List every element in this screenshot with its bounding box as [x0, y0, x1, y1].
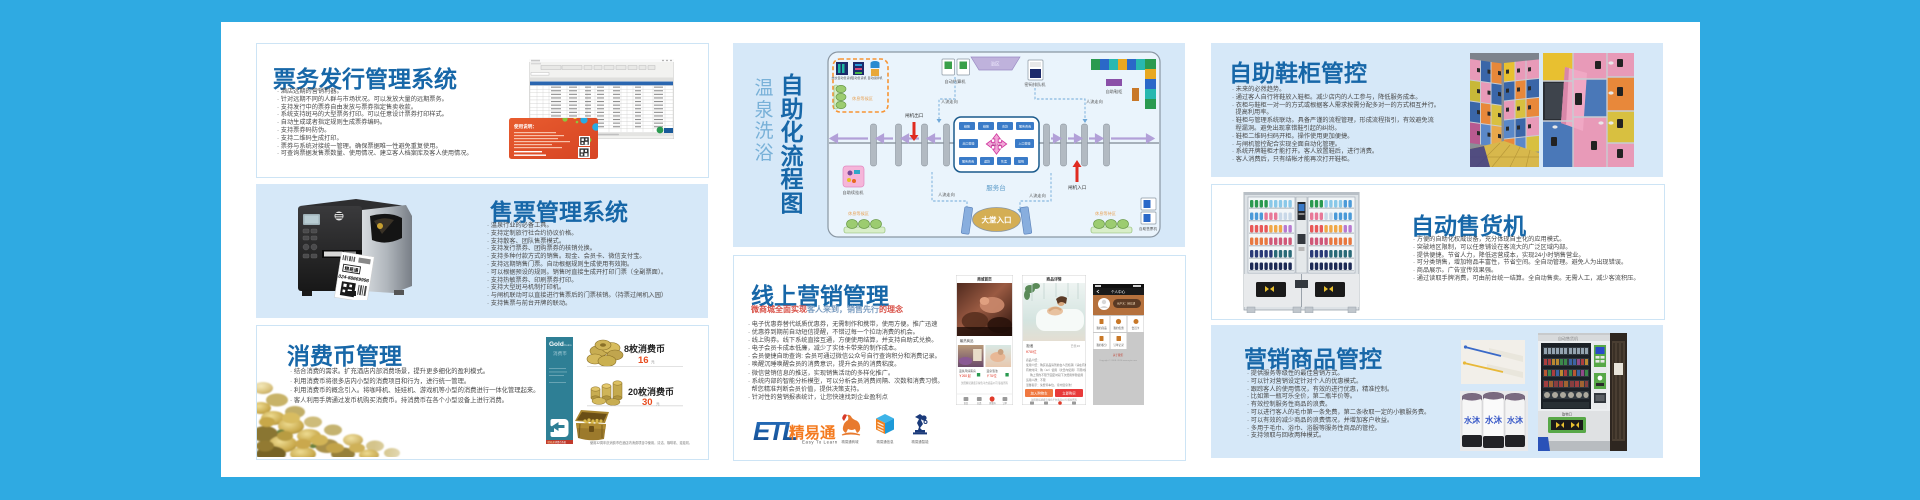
svg-text:取物口: 取物口: [1562, 412, 1572, 417]
svg-text:￥268 起: ￥268 起: [959, 373, 972, 378]
svg-text:服务咨询: 服务咨询: [962, 159, 974, 164]
svg-text:大堂入口: 大堂入口: [982, 215, 1012, 225]
svg-text:出口查验: 出口查验: [962, 141, 974, 146]
svg-text:水沐: 水沐: [1484, 415, 1503, 425]
svg-text:人流走向: 人流走向: [1029, 192, 1046, 199]
svg-text:水沐: 水沐: [1506, 415, 1524, 425]
svg-text:人流走向: 人流走向: [941, 98, 958, 105]
svg-text:消费币: 消费币: [553, 350, 567, 357]
svg-text:精易通信息: 精易通信息: [877, 439, 895, 444]
svg-text:16: 16: [638, 355, 649, 366]
svg-text:商品详情: 商品详情: [1046, 277, 1061, 282]
svg-text:关于我们: 关于我们: [1113, 353, 1124, 357]
svg-text:订单记录: 订单记录: [1113, 343, 1124, 347]
svg-text:返款: 返款: [984, 159, 990, 164]
svg-text:元: 元: [651, 360, 655, 364]
svg-text:泡池: 泡池: [1026, 343, 1034, 348]
svg-text:自助售票机: 自助售票机: [1139, 226, 1157, 231]
svg-text:提到: 提到: [1018, 159, 1024, 164]
svg-text:加入购物车: 加入购物车: [1031, 391, 1049, 396]
svg-text:￥78/位: ￥78/位: [986, 373, 996, 378]
svg-text:我的优惠: 我的优惠: [1113, 326, 1124, 330]
svg-text:20枚消费币: 20枚消费币: [628, 386, 674, 397]
svg-text:¥78/位: ¥78/位: [1026, 349, 1037, 354]
svg-text:温泉风情客房: 温泉风情客房: [959, 368, 976, 373]
svg-text:Copyright © 2008–2016 www.eyto: Copyright © 2008–2016 www.eyto.com: [1099, 359, 1137, 362]
svg-text:浴区: 浴区: [991, 61, 1000, 68]
svg-text:元: 元: [656, 402, 660, 406]
svg-text:沈阳精易通盛京绿色平台商品公司 版权所有: 沈阳精易通盛京绿色平台商品公司 版权所有: [1031, 398, 1078, 402]
svg-text:小计：: 小计：: [637, 350, 646, 355]
svg-text:闸机出口: 闸机出口: [905, 112, 924, 119]
svg-text:立即购买: 立即购买: [1062, 391, 1076, 396]
svg-text:服务台: 服务台: [986, 183, 1006, 192]
svg-text:个人中心: 个人中心: [1111, 289, 1126, 294]
svg-text:Gold: Gold: [549, 341, 564, 348]
svg-text:温馨提示：免费停车位，室内温泉池！: 温馨提示：免费停车位，室内温泉池！: [1026, 383, 1074, 387]
svg-text:已售36: 已售36: [1071, 343, 1081, 348]
svg-text:水沐: 水沐: [1463, 415, 1481, 425]
svg-text:密码排队机: 密码排队机: [1025, 81, 1047, 88]
svg-text:服务咨询: 服务咨询: [1019, 124, 1031, 129]
svg-text:自动售货机: 自动售货机: [1558, 335, 1578, 341]
svg-text:我的商品: 我的商品: [1096, 326, 1107, 330]
svg-text:Coins: Coins: [564, 343, 572, 347]
svg-text:人流走向: 人流走向: [938, 191, 955, 198]
svg-text:购上预约不限于固定时段下次费用伴随使用: 购上预约不限于固定时段下次费用伴随使用: [1030, 373, 1083, 377]
svg-text:结账: 结账: [964, 124, 970, 129]
svg-text:热饮自动售货机: 热饮自动售货机: [831, 75, 852, 80]
svg-text:结账: 结账: [983, 124, 989, 129]
svg-text:休息等候区: 休息等候区: [852, 95, 873, 102]
svg-text:自助续挂机: 自助续挂机: [843, 189, 865, 196]
svg-text:精易通商城: 精易通商城: [842, 439, 860, 444]
svg-text:最热商品: 最热商品: [960, 338, 974, 343]
svg-text:Easy To Learn: Easy To Learn: [802, 440, 838, 445]
svg-text:精易通智能: 精易通智能: [912, 439, 930, 444]
svg-text:沈阳精易通盛京绿色平台商品公司 版权所有: 沈阳精易通盛京绿色平台商品公司 版权所有: [961, 381, 1009, 385]
svg-text:人流走向: 人流走向: [1086, 98, 1103, 105]
svg-text:充款: 充款: [1002, 124, 1008, 129]
svg-text:自动续牌机: 自动续牌机: [867, 75, 882, 80]
svg-text:入口查验: 入口查验: [1018, 141, 1030, 146]
svg-text:我的积分: 我的积分: [1096, 343, 1107, 347]
svg-text:自助鞋柜: 自助鞋柜: [1106, 88, 1123, 95]
svg-text:闸机入口: 闸机入口: [1068, 184, 1087, 191]
svg-text:商城首页: 商城首页: [977, 276, 992, 281]
svg-text:使用介绍：购买商品请到前台人员核销（请在有效时间内使用）: 使用介绍：购买商品请到前台人员核销（请在有效时间内使用）: [1026, 363, 1086, 367]
svg-text:有效时间：购（12）使用（次日内使用）不限时间段: 有效时间：购（12）使用（次日内使用）不限时间段: [1026, 368, 1086, 372]
svg-text:温泉泡池: 温泉泡池: [986, 368, 997, 373]
svg-text:休息等待区: 休息等待区: [1095, 210, 1116, 217]
svg-text:用户名：精易通: 用户名：精易通: [1117, 302, 1136, 306]
svg-text:商品介绍：: 商品介绍：: [1026, 358, 1040, 362]
svg-text:休息等候区: 休息等候区: [848, 210, 869, 217]
svg-text:使用说明：: 使用说明：: [513, 123, 537, 130]
svg-text:售卖: 售卖: [1001, 159, 1007, 164]
svg-text:适用人群：不限: 适用人群：不限: [1026, 378, 1046, 382]
svg-text:自动售货机: 自动售货机: [851, 75, 866, 80]
svg-text:会员卡: 会员卡: [1132, 326, 1140, 330]
